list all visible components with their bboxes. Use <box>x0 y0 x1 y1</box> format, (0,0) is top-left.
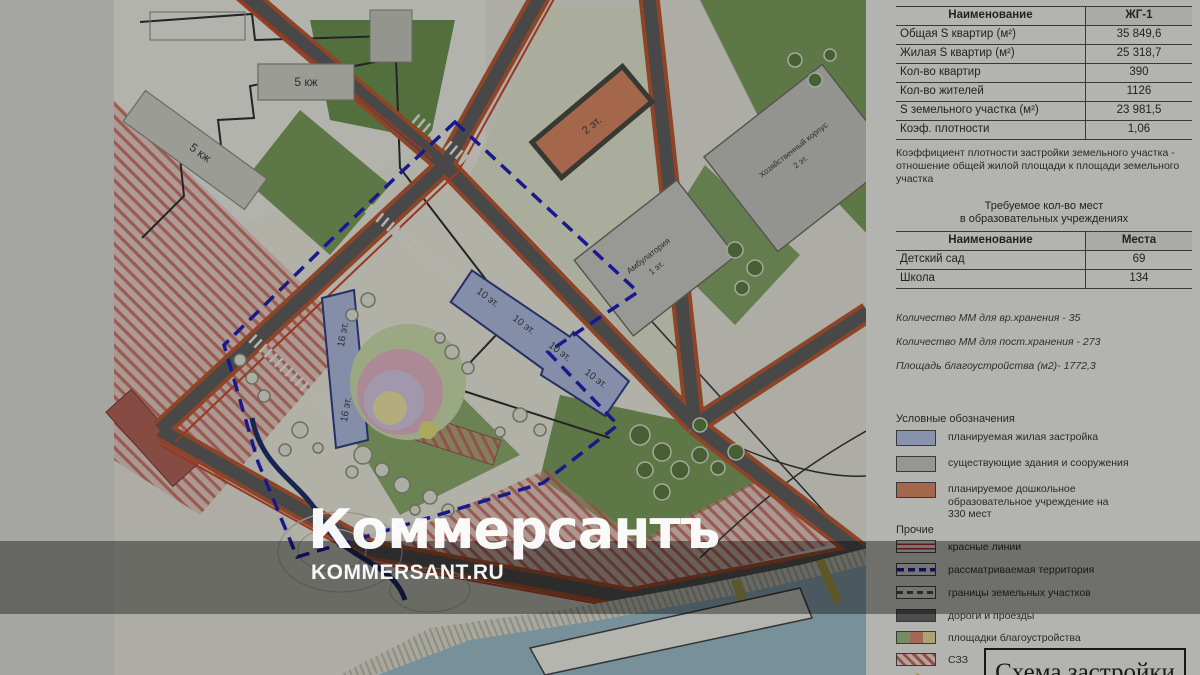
legend-item-roads: дороги и проезды <box>896 609 1034 623</box>
legend-other-title: Прочие <box>896 524 1192 536</box>
legend-item-residential: планируемая жилая застройка <box>896 430 1138 446</box>
edu-table-header-name: Наименование <box>896 232 1085 251</box>
legend-item-territory: рассматриваемая территория <box>896 563 1094 577</box>
row-label: Кол-во квартир <box>896 64 1085 83</box>
kindergarten-swatch <box>896 482 936 498</box>
row-value: 69 <box>1085 251 1192 270</box>
legend-item-parcel-borders: границы земельных участков <box>896 586 1091 600</box>
row-value: 1126 <box>1085 83 1192 102</box>
legend-label: площадки благоустройства <box>948 631 1081 645</box>
row-value: 1,06 <box>1085 121 1192 140</box>
row-label: Общая S квартир (м²) <box>896 26 1085 45</box>
edu-heading-line1: Требуемое кол-во мест <box>896 200 1192 213</box>
row-value: 35 849,6 <box>1085 26 1192 45</box>
territory-swatch <box>896 563 936 576</box>
edu-table: Наименование Места Детский сад69 Школа13… <box>896 231 1192 289</box>
table-row: S земельного участка (м²)23 981,5 <box>896 102 1192 121</box>
table-row: Кол-во жителей1126 <box>896 83 1192 102</box>
parcel-borders-swatch <box>896 586 936 599</box>
legend-label: рассматриваемая территория <box>948 563 1094 577</box>
legend-label: планируемое дошкольное образовательное у… <box>948 482 1128 521</box>
legend-label: границы земельных участков <box>948 586 1091 600</box>
article-image: 5 кж 5 кж 2 эт. 16 эт. 16 эт. 10 эт. 10 … <box>0 0 1200 675</box>
legend-item-kindergarten: планируемое дошкольное образовательное у… <box>896 482 1128 521</box>
legend-label: существующие здания и сооружения <box>948 456 1158 470</box>
residential-swatch <box>896 430 936 446</box>
legend-item-szz: СЗЗ <box>896 653 968 667</box>
table-row: Общая S квартир (м²)35 849,6 <box>896 26 1192 45</box>
density-note: Коэффициент плотности застройки земельно… <box>896 147 1192 186</box>
legend-title: Условные обозначения <box>896 413 1192 425</box>
row-label: Жилая S квартир (м²) <box>896 45 1085 64</box>
spec-table-header-value: ЖГ-1 <box>1085 7 1192 26</box>
table-row: Коэф. плотности1,06 <box>896 121 1192 140</box>
edu-table-header-value: Места <box>1085 232 1192 251</box>
landscaping-swatch <box>896 631 936 644</box>
legend-label: красные линии <box>948 540 1021 554</box>
legend-item-landscaping: площадки благоустройства <box>896 631 1081 645</box>
row-label: Школа <box>896 270 1085 289</box>
table-row: Детский сад69 <box>896 251 1192 270</box>
row-value: 23 981,5 <box>1085 102 1192 121</box>
legend-item-red-lines: красные линии <box>896 540 1021 554</box>
row-label: Коэф. плотности <box>896 121 1085 140</box>
row-label: Кол-во жителей <box>896 83 1085 102</box>
szz-swatch <box>896 653 936 666</box>
playground <box>350 324 466 440</box>
legend-label: СЗЗ <box>948 653 968 667</box>
note-mm-temp: Количество ММ для вр.хранения - 35 <box>896 312 1080 324</box>
legend-label: дороги и проезды <box>948 609 1034 623</box>
row-label: S земельного участка (м²) <box>896 102 1085 121</box>
label-5kzh-a: 5 кж <box>294 75 317 89</box>
row-value: 390 <box>1085 64 1192 83</box>
legend-item-existing: существующие здания и сооружения <box>896 456 1158 472</box>
spec-table: Наименование ЖГ-1 Общая S квартир (м²)35… <box>896 6 1192 140</box>
row-label: Детский сад <box>896 251 1085 270</box>
spec-table-header-name: Наименование <box>896 7 1085 26</box>
table-row: Школа134 <box>896 270 1192 289</box>
table-row: Жилая S квартир (м²)25 318,7 <box>896 45 1192 64</box>
red-lines-swatch <box>896 540 936 553</box>
roads-swatch <box>896 609 936 622</box>
table-row: Кол-во квартир390 <box>896 64 1192 83</box>
edu-heading-line2: в образовательных учреждениях <box>896 213 1192 226</box>
scheme-title-box: Схема застройки <box>984 648 1186 675</box>
spec-panel: Наименование ЖГ-1 Общая S квартир (м²)35… <box>866 0 1200 675</box>
edu-heading: Требуемое кол-во мест в образовательных … <box>896 200 1192 226</box>
existing-swatch <box>896 456 936 472</box>
row-value: 134 <box>1085 270 1192 289</box>
site-plan-map: 5 кж 5 кж 2 эт. 16 эт. 16 эт. 10 эт. 10 … <box>0 0 868 675</box>
row-value: 25 318,7 <box>1085 45 1192 64</box>
legend-label: планируемая жилая застройка <box>948 430 1138 444</box>
note-landscaping: Площадь благоустройства (м2)- 1772,3 <box>896 360 1096 372</box>
note-mm-perm: Количество ММ для пост.хранения - 273 <box>896 336 1100 348</box>
